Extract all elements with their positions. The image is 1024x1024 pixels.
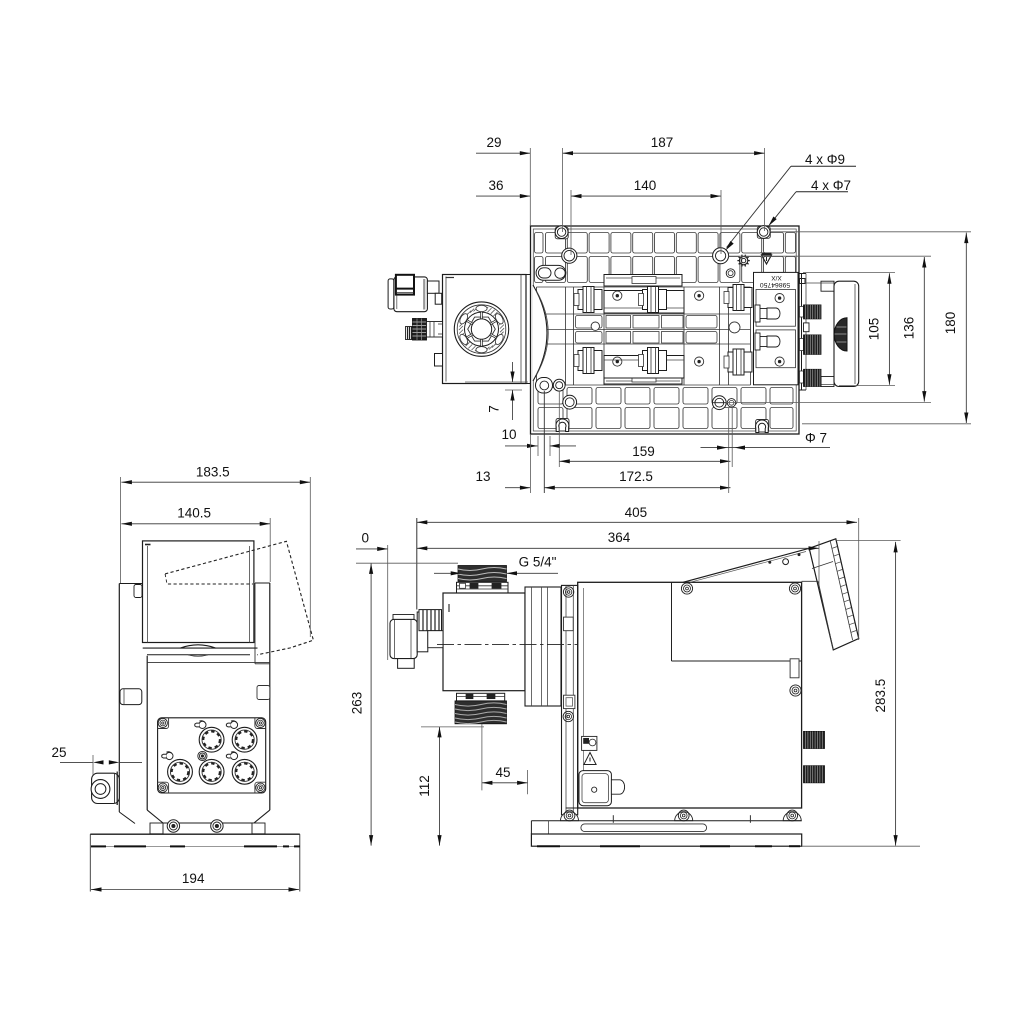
svg-text:180: 180 <box>943 312 958 335</box>
svg-text:10: 10 <box>501 427 516 442</box>
svg-text:25: 25 <box>51 745 66 760</box>
svg-text:187: 187 <box>651 135 674 150</box>
svg-text:29: 29 <box>486 135 501 150</box>
svg-text:45: 45 <box>495 765 510 780</box>
svg-text:Φ 7: Φ 7 <box>805 431 827 446</box>
svg-text:136: 136 <box>902 317 917 340</box>
svg-text:13: 13 <box>475 469 490 484</box>
svg-text:112: 112 <box>417 775 432 797</box>
svg-text:405: 405 <box>625 505 648 520</box>
svg-text:59864750: 59864750 <box>760 281 790 288</box>
svg-text:159: 159 <box>632 444 655 459</box>
svg-text:283.5: 283.5 <box>873 679 888 713</box>
svg-text:X/X: X/X <box>771 274 782 281</box>
svg-text:263: 263 <box>350 692 365 715</box>
svg-text:0: 0 <box>362 531 370 546</box>
svg-text:4 x Φ9: 4 x Φ9 <box>805 152 845 167</box>
svg-text:G 5/4": G 5/4" <box>519 555 557 570</box>
svg-text:4 x Φ7: 4 x Φ7 <box>811 178 851 193</box>
svg-text:194: 194 <box>182 871 205 886</box>
svg-text:172.5: 172.5 <box>619 469 653 484</box>
svg-text:183.5: 183.5 <box>196 465 230 480</box>
svg-text:364: 364 <box>608 530 631 545</box>
svg-text:105: 105 <box>867 318 882 341</box>
svg-text:140: 140 <box>634 178 657 193</box>
svg-text:140.5: 140.5 <box>177 506 211 521</box>
svg-text:7: 7 <box>487 405 502 413</box>
svg-text:36: 36 <box>488 178 503 193</box>
